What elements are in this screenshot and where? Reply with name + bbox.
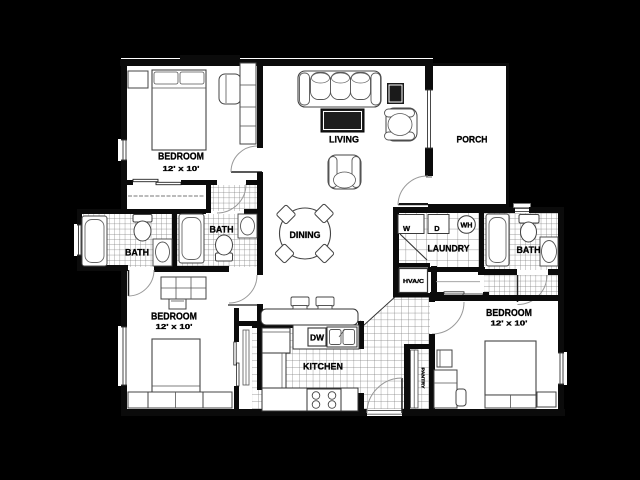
svg-text:LAUNDRY: LAUNDRY [428,243,471,254]
svg-text:BATH: BATH [210,225,234,235]
svg-text:W: W [403,224,411,233]
svg-text:12' x 10': 12' x 10' [491,319,528,328]
svg-text:BEDROOM: BEDROOM [486,308,532,319]
svg-text:DINING: DINING [290,230,321,241]
svg-text:LIVING: LIVING [329,135,359,146]
svg-text:BEDROOM: BEDROOM [158,152,204,163]
svg-text:WH: WH [461,223,473,230]
svg-text:PORCH: PORCH [457,135,488,146]
svg-text:PANTRY: PANTRY [420,368,426,390]
svg-text:12' x 10': 12' x 10' [156,322,193,331]
svg-text:D: D [434,224,440,233]
svg-text:KITCHEN: KITCHEN [303,362,343,373]
svg-text:DW: DW [310,334,324,343]
svg-text:12' x 10': 12' x 10' [163,164,200,173]
svg-text:HVA/C: HVA/C [403,279,425,285]
svg-text:BATH: BATH [125,247,149,257]
svg-text:BATH: BATH [517,245,541,255]
